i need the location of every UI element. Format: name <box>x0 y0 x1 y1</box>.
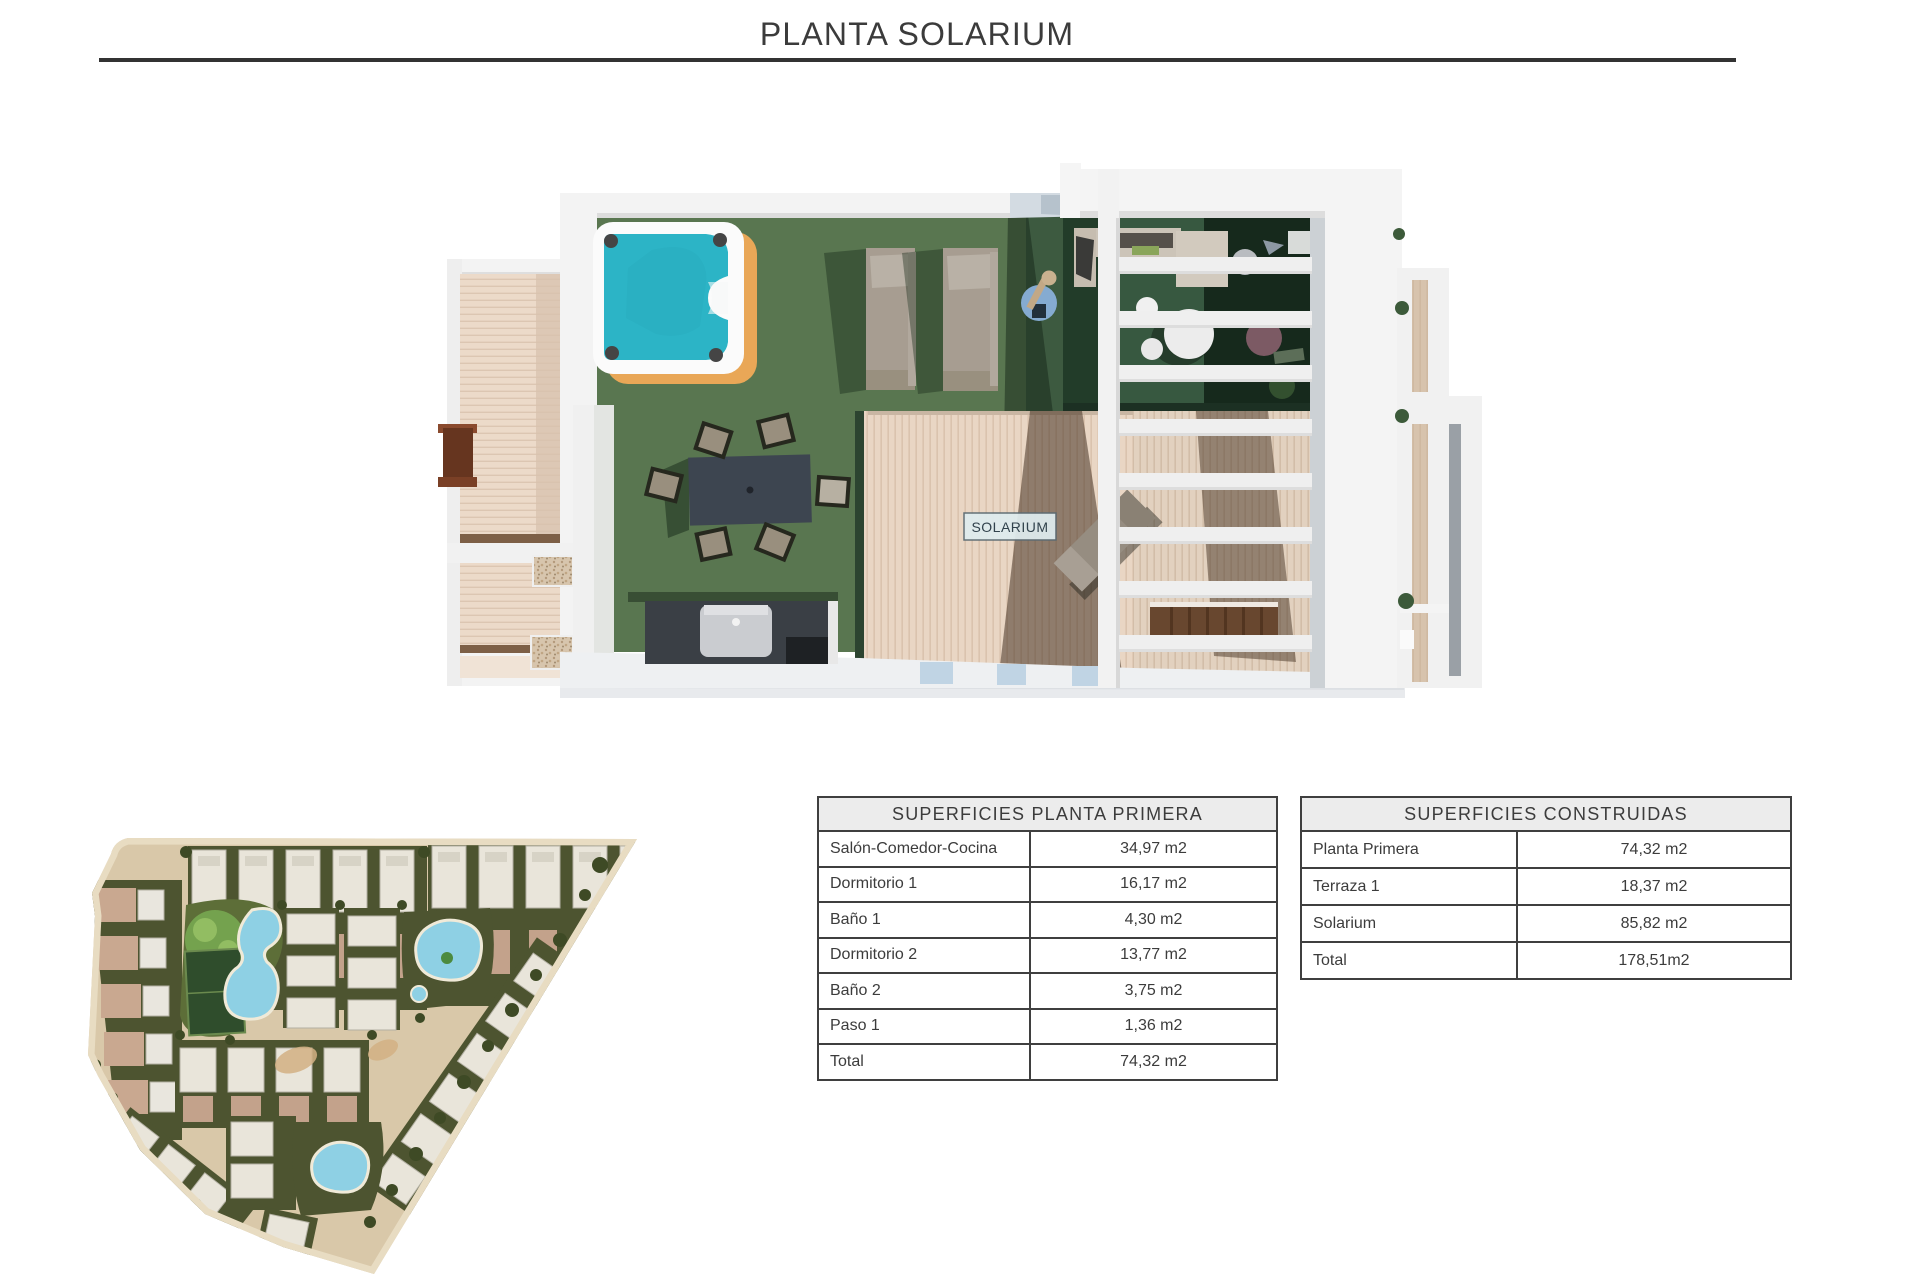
svg-text:SOLARIUM: SOLARIUM <box>971 519 1048 535</box>
